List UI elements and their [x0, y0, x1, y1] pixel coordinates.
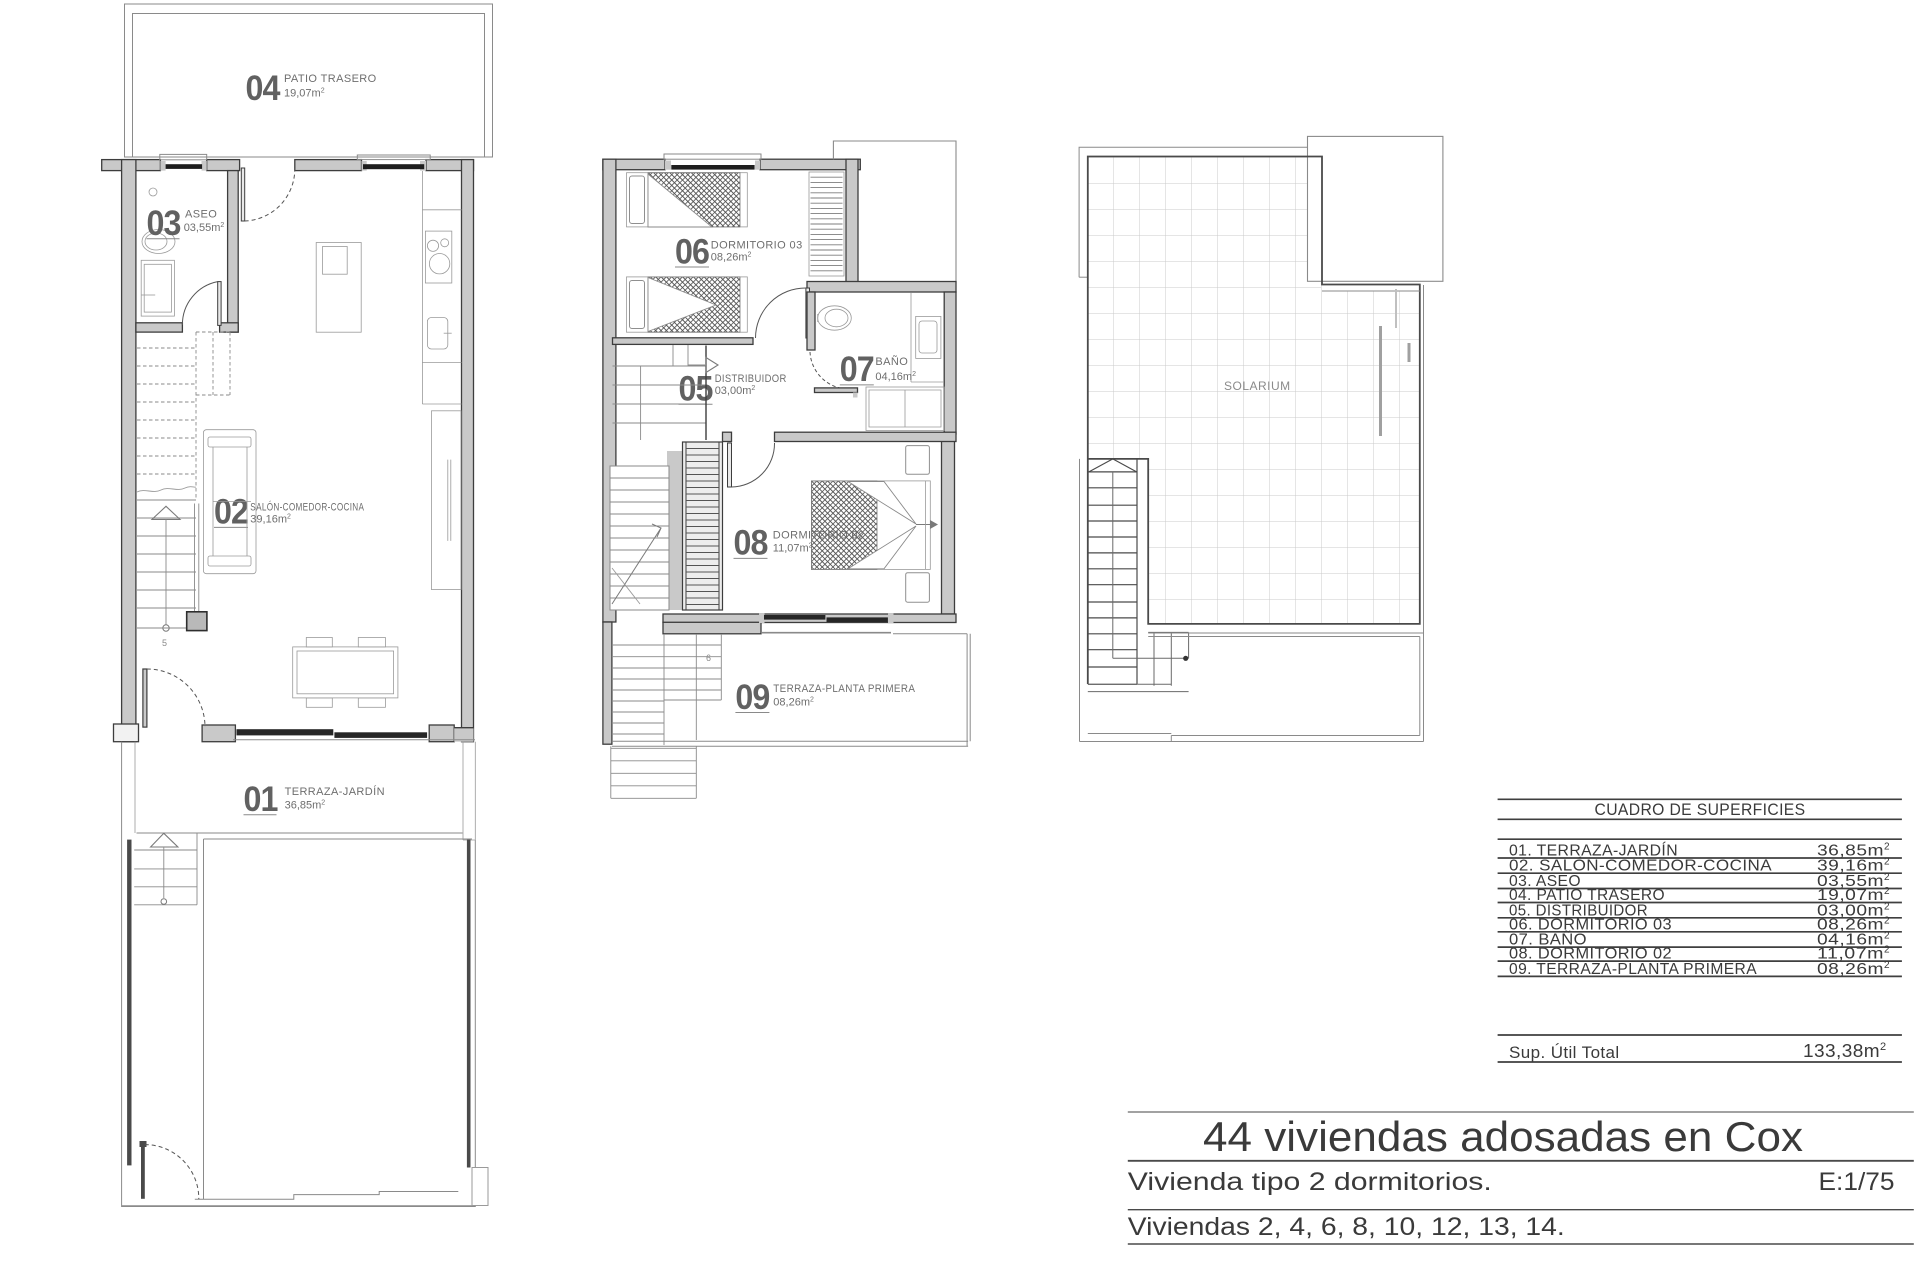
svg-text:07: 07 — [840, 350, 874, 389]
svg-text:2: 2 — [1880, 1041, 1887, 1053]
svg-text:2: 2 — [1884, 960, 1890, 971]
svg-text:04,16m2: 04,16m2 — [875, 371, 916, 383]
svg-text:2: 2 — [1884, 842, 1890, 853]
svg-text:02: 02 — [214, 493, 248, 532]
svg-text:03,00m2: 03,00m2 — [715, 385, 756, 397]
svg-text:DISTRIBUIDOR: DISTRIBUIDOR — [715, 373, 787, 385]
svg-text:2: 2 — [1884, 915, 1890, 926]
svg-text:CUADRO DE SUPERFICIES: CUADRO DE SUPERFICIES — [1595, 800, 1806, 819]
svg-text:5: 5 — [162, 638, 167, 648]
svg-text:SOLARIUM: SOLARIUM — [1224, 379, 1291, 393]
svg-text:2: 2 — [1884, 901, 1890, 912]
svg-text:02. SALÓN-COMEDOR-COCINA: 02. SALÓN-COMEDOR-COCINA — [1509, 856, 1772, 875]
svg-text:03,55m2: 03,55m2 — [184, 222, 225, 234]
svg-text:11,07m2: 11,07m2 — [773, 543, 813, 555]
svg-text:09. TERRAZA-PLANTA PRIMERA: 09. TERRAZA-PLANTA PRIMERA — [1509, 961, 1757, 978]
svg-text:Sup. Útil Total: Sup. Útil Total — [1509, 1043, 1620, 1062]
svg-text:44 viviendas adosadas en Cox: 44 viviendas adosadas en Cox — [1203, 1113, 1803, 1160]
svg-text:19,07m2: 19,07m2 — [284, 88, 325, 100]
svg-text:2: 2 — [1884, 857, 1890, 868]
svg-text:08,26m2: 08,26m2 — [773, 697, 814, 709]
svg-text:PATIO TRASERO: PATIO TRASERO — [284, 73, 377, 85]
svg-text:04: 04 — [246, 69, 281, 108]
svg-text:Viviendas 2, 4, 6, 8, 10, 12,: Viviendas 2, 4, 6, 8, 10, 12, 13, 14. — [1128, 1213, 1565, 1241]
svg-text:05: 05 — [679, 370, 713, 409]
svg-text:01. TERRAZA-JARDÍN: 01. TERRAZA-JARDÍN — [1509, 841, 1678, 860]
svg-text:08,26m2: 08,26m2 — [711, 252, 752, 264]
svg-text:DORMITORIO 02: DORMITORIO 02 — [773, 529, 865, 541]
svg-text:Vivienda tipo 2 dormitorios.: Vivienda tipo 2 dormitorios. — [1128, 1168, 1492, 1196]
svg-text:2: 2 — [1884, 931, 1890, 942]
svg-text:08,26m: 08,26m — [1817, 961, 1884, 978]
svg-text:133,38m: 133,38m — [1803, 1041, 1880, 1061]
svg-text:36,85m2: 36,85m2 — [285, 800, 326, 812]
svg-text:2: 2 — [1884, 945, 1890, 956]
svg-text:6: 6 — [706, 653, 711, 663]
svg-text:ASEO: ASEO — [185, 209, 217, 221]
svg-text:DORMITORIO 03: DORMITORIO 03 — [711, 240, 803, 252]
svg-text:BAÑO: BAÑO — [875, 355, 908, 368]
svg-text:2: 2 — [1884, 872, 1890, 883]
svg-text:SALÓN-COMEDOR-COCINA: SALÓN-COMEDOR-COCINA — [250, 501, 364, 514]
svg-text:TERRAZA-JARDÍN: TERRAZA-JARDÍN — [285, 785, 385, 798]
svg-text:09: 09 — [735, 678, 769, 717]
svg-text:08: 08 — [734, 524, 768, 563]
svg-text:TERRAZA-PLANTA PRIMERA: TERRAZA-PLANTA PRIMERA — [773, 683, 915, 695]
svg-text:03: 03 — [147, 204, 181, 243]
svg-text:E:1/75: E:1/75 — [1819, 1168, 1895, 1196]
svg-text:2: 2 — [1884, 886, 1890, 897]
svg-text:39,16m2: 39,16m2 — [250, 514, 291, 526]
svg-text:06: 06 — [675, 232, 709, 271]
svg-text:01: 01 — [244, 780, 278, 819]
